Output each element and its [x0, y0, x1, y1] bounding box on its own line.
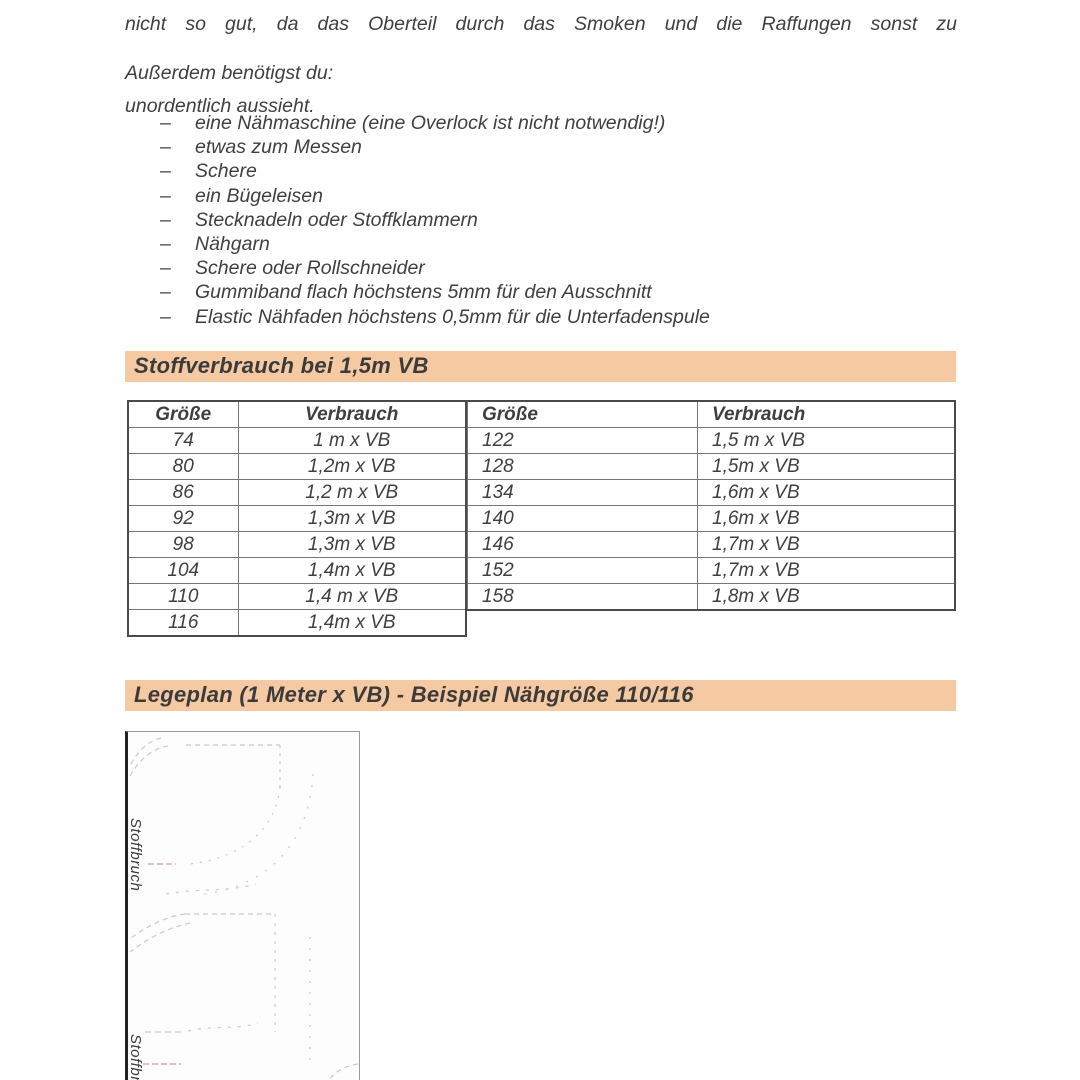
list-item-label: Gummiband flach höchstens 5mm für den Au… — [195, 281, 652, 303]
table-cell: 140 — [468, 506, 698, 532]
table-cell: 122 — [468, 428, 698, 454]
table-cell: 134 — [468, 480, 698, 506]
list-item: –Elastic Nähfaden höchstens 0,5mm für di… — [125, 305, 710, 329]
list-item: –etwas zum Messen — [125, 135, 710, 159]
section-title-legeplan: Legeplan (1 Meter x VB) - Beispiel Nähgr… — [125, 680, 956, 711]
list-item-label: Elastic Nähfaden höchstens 0,5mm für die… — [195, 306, 710, 328]
table-row: 1161,4m x VB — [128, 610, 466, 637]
table-cell: 1,4m x VB — [238, 558, 466, 584]
table-row: 1401,6m x VB — [468, 506, 955, 532]
layout-diagram: Stoffbruch Stoffbruch — [125, 731, 360, 1080]
dash-bullet: – — [160, 159, 195, 183]
list-item-label: Nähgarn — [195, 233, 270, 255]
table-cell: 1,7m x VB — [698, 532, 955, 558]
table-row: 861,2 m x VB — [128, 480, 466, 506]
table-cell: 80 — [128, 454, 238, 480]
table-cell: 98 — [128, 532, 238, 558]
table-cell: 74 — [128, 428, 238, 454]
pattern-inner-curve-1 — [190, 787, 280, 864]
fold-label-bottom: Stoffbruch — [128, 1034, 142, 1080]
pattern-hem-line-2 — [188, 1023, 258, 1031]
table-cell: 1,5 m x VB — [698, 428, 955, 454]
table-cell: 1,3m x VB — [238, 532, 466, 558]
table-row: 921,3m x VB — [128, 506, 466, 532]
list-item: –Nähgarn — [125, 232, 710, 256]
dash-bullet: – — [160, 208, 195, 232]
table-cell: 1,7m x VB — [698, 558, 955, 584]
pattern-hem-line-1 — [166, 884, 256, 894]
column-header: Größe — [128, 401, 238, 428]
section-title-stoffverbrauch: Stoffverbrauch bei 1,5m VB — [125, 351, 956, 382]
list-item: –Gummiband flach höchstens 5mm für den A… — [125, 280, 710, 304]
column-header: Größe — [468, 401, 698, 428]
dash-bullet: – — [160, 232, 195, 256]
dash-bullet: – — [160, 184, 195, 208]
column-header: Verbrauch — [238, 401, 466, 428]
header-row: GrößeVerbrauch — [468, 401, 955, 428]
dash-bullet: – — [160, 111, 195, 135]
table-row: 1041,4m x VB — [128, 558, 466, 584]
header-row: GrößeVerbrauch — [128, 401, 466, 428]
dash-bullet: – — [160, 280, 195, 304]
table-cell: 1,8m x VB — [698, 584, 955, 611]
column-header: Verbrauch — [698, 401, 955, 428]
pattern-neck-curve-1 — [130, 738, 161, 766]
table-cell: 1,2m x VB — [238, 454, 466, 480]
table-cell: 1,2 m x VB — [238, 480, 466, 506]
dash-bullet: – — [160, 256, 195, 280]
dash-bullet: – — [160, 305, 195, 329]
list-item: –Schere oder Rollschneider — [125, 256, 710, 280]
pattern-neck-curve-2 — [130, 746, 168, 776]
table-row: 1281,5m x VB — [468, 454, 955, 480]
document-page: nicht so gut, da das Oberteil durch das … — [0, 0, 1080, 1080]
table-row: 1101,4 m x VB — [128, 584, 466, 610]
table-row: 981,3m x VB — [128, 532, 466, 558]
table-cell: 1 m x VB — [238, 428, 466, 454]
table-row: 1221,5 m x VB — [468, 428, 955, 454]
list-item-label: eine Nähmaschine (eine Overlock ist nich… — [195, 112, 665, 134]
list-item: –ein Bügeleisen — [125, 184, 710, 208]
table-row: 801,2m x VB — [128, 454, 466, 480]
table-cell: 1,6m x VB — [698, 506, 955, 532]
list-item: –Stecknadeln oder Stoffklammern — [125, 208, 710, 232]
pattern-neck-curve-4 — [130, 923, 190, 952]
table-cell: 146 — [468, 532, 698, 558]
dash-bullet: – — [160, 135, 195, 159]
table-cell: 128 — [468, 454, 698, 480]
table-row: 1461,7m x VB — [468, 532, 955, 558]
table-cell: 104 — [128, 558, 238, 584]
list-item-label: ein Bügeleisen — [195, 185, 323, 207]
pattern-outline-drawing — [128, 732, 360, 1080]
table-cell: 116 — [128, 610, 238, 637]
table-cell: 1,6m x VB — [698, 480, 955, 506]
fabric-table-right: GrößeVerbrauch1221,5 m x VB1281,5m x VB1… — [467, 400, 956, 611]
list-item-label: Schere — [195, 160, 257, 182]
list-item-label: Schere oder Rollschneider — [195, 257, 425, 279]
needs-list: –eine Nähmaschine (eine Overlock ist nic… — [125, 111, 710, 329]
list-item-label: Stecknadeln oder Stoffklammern — [195, 209, 478, 231]
table-cell: 1,5m x VB — [698, 454, 955, 480]
table-row: 1521,7m x VB — [468, 558, 955, 584]
table-cell: 110 — [128, 584, 238, 610]
table-row: 1341,6m x VB — [468, 480, 955, 506]
pattern-corner-curve — [323, 1064, 358, 1080]
fabric-table-left: GrößeVerbrauch741 m x VB801,2m x VB861,2… — [127, 400, 467, 637]
fold-label-top: Stoffbruch — [128, 818, 142, 891]
table-cell: 1,3m x VB — [238, 506, 466, 532]
table-cell: 1,4m x VB — [238, 610, 466, 637]
table-cell: 86 — [128, 480, 238, 506]
table-row: 1581,8m x VB — [468, 584, 955, 611]
table-cell: 1,4 m x VB — [238, 584, 466, 610]
table-cell: 158 — [468, 584, 698, 611]
table-cell: 92 — [128, 506, 238, 532]
needs-heading: Außerdem benötigst du: — [125, 62, 333, 85]
table-cell: 152 — [468, 558, 698, 584]
list-item: –Schere — [125, 159, 710, 183]
list-item: –eine Nähmaschine (eine Overlock ist nic… — [125, 111, 710, 135]
table-row: 741 m x VB — [128, 428, 466, 454]
pattern-outer-curve-1 — [196, 774, 313, 895]
fabric-consumption-tables: GrößeVerbrauch741 m x VB801,2m x VB861,2… — [127, 400, 956, 637]
list-item-label: etwas zum Messen — [195, 136, 362, 158]
